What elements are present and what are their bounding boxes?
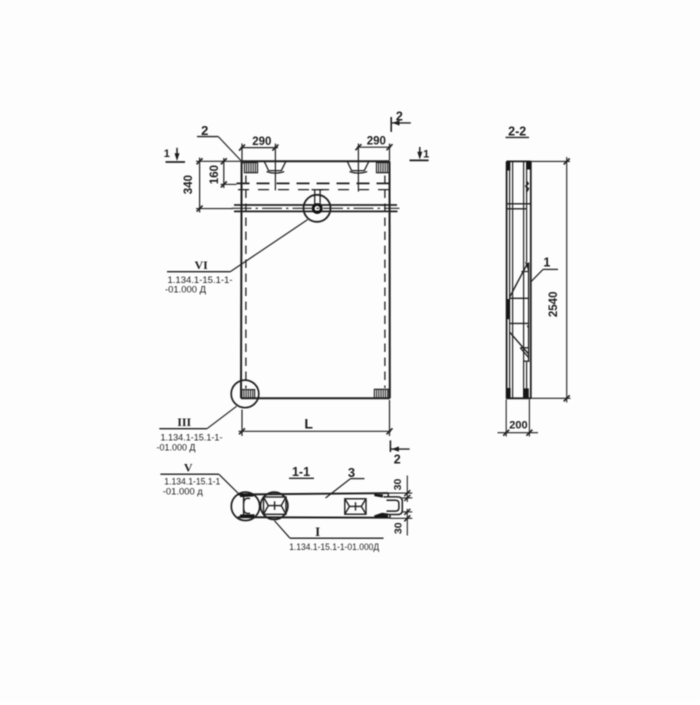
svg-text:V: V [184,460,193,474]
svg-text:160: 160 [209,165,221,184]
svg-text:-01.000 д: -01.000 д [163,487,204,497]
svg-text:30: 30 [392,479,404,491]
svg-text:200: 200 [509,420,527,432]
svg-text:290: 290 [252,136,271,148]
svg-text:1.134.1-15.1-1-: 1.134.1-15.1-1- [168,275,233,285]
svg-text:2: 2 [201,123,208,138]
svg-text:VI: VI [195,258,209,272]
svg-text:3: 3 [348,465,355,480]
svg-text:1.134.1-15.1-1: 1.134.1-15.1-1 [164,477,220,487]
svg-text:2-2: 2-2 [508,124,526,138]
svg-text:2: 2 [394,453,401,467]
svg-text:2540: 2540 [548,292,560,318]
svg-text:1: 1 [423,149,429,161]
svg-text:1-1: 1-1 [292,465,310,479]
svg-text:30: 30 [393,522,405,534]
svg-text:2: 2 [396,109,403,123]
svg-text:1: 1 [543,255,550,269]
svg-text:1.134.1-15.1-1-01.000Д: 1.134.1-15.1-1-01.000Д [289,542,379,552]
svg-text:-01.000 Д: -01.000 Д [157,442,196,452]
svg-text:1.134.1-15.1-1-: 1.134.1-15.1-1- [161,432,223,442]
svg-text:L: L [304,416,313,432]
svg-text:290: 290 [367,135,386,147]
svg-text:1: 1 [164,148,170,160]
svg-text:III: III [177,415,191,429]
svg-text:I: I [315,524,320,539]
svg-text:-01.000 Д: -01.000 Д [165,285,206,295]
svg-text:340: 340 [183,175,195,194]
